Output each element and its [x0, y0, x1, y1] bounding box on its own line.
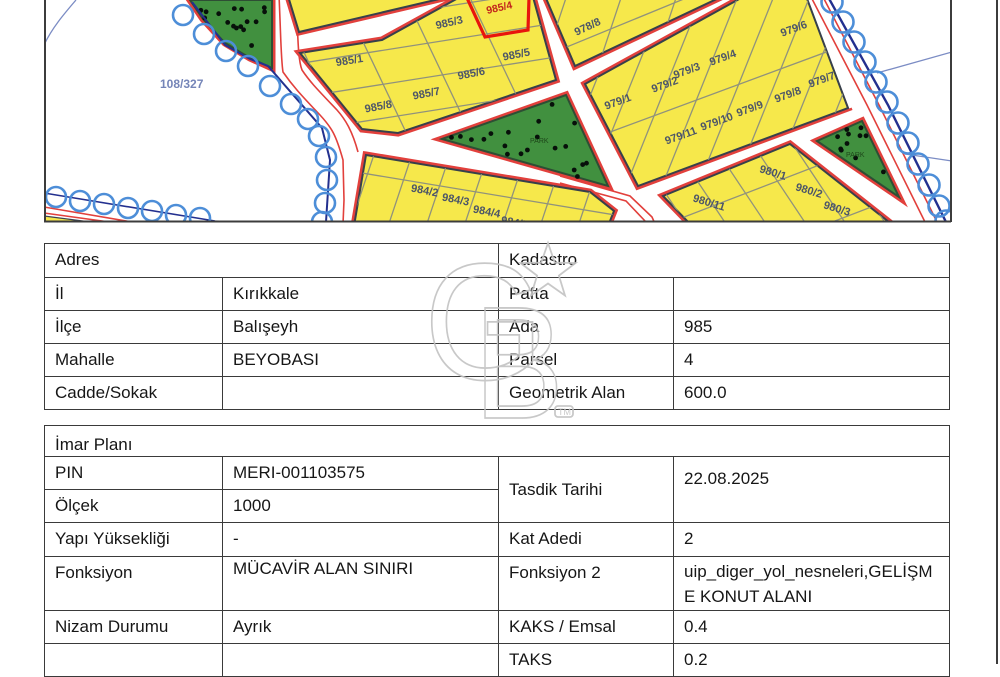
svg-text:TM: TM [558, 407, 571, 417]
svg-text:PARK: PARK [530, 138, 549, 145]
svg-text:B: B [474, 274, 564, 450]
svg-text:PARK: PARK [846, 152, 865, 159]
svg-text:108/327: 108/327 [160, 77, 204, 91]
